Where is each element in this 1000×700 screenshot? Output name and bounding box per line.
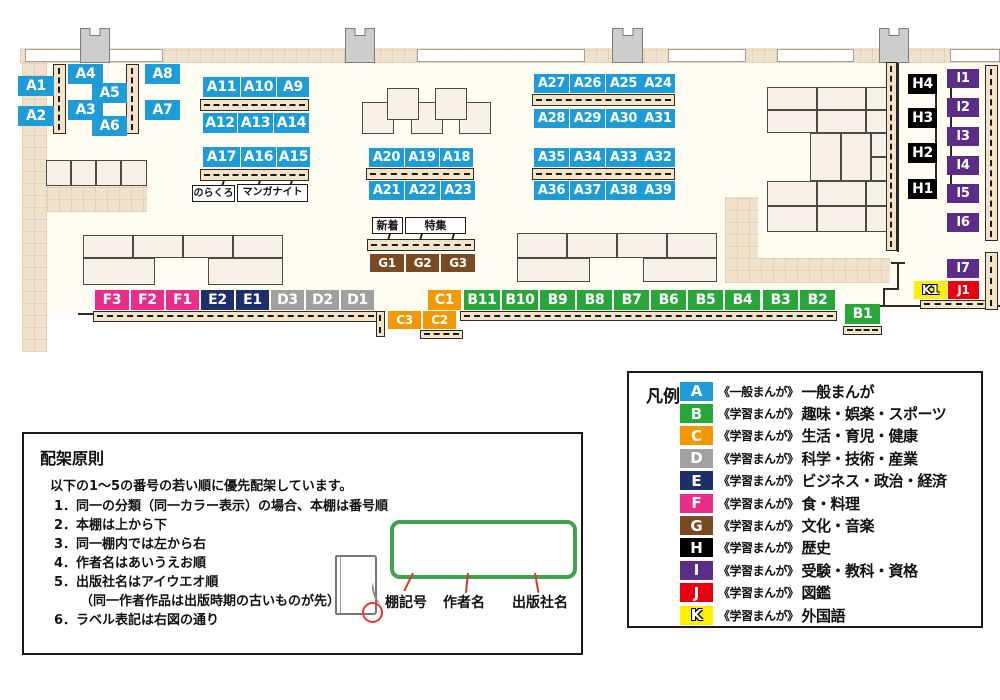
legend-swatch-c: C xyxy=(680,426,713,445)
map-label-b1: B1 xyxy=(845,304,880,324)
map-label-i5: I5 xyxy=(947,184,979,203)
legend-category-label: 受験・教科・資格 xyxy=(802,560,918,581)
reading-table xyxy=(767,181,817,206)
map-label-i3: I3 xyxy=(947,127,979,146)
map-label-h1: H1 xyxy=(908,179,937,199)
reading-table xyxy=(643,258,717,282)
map-label-a28: A28 xyxy=(534,109,569,128)
map-label-a29: A29 xyxy=(570,109,605,128)
map-label-b5: B5 xyxy=(688,290,723,310)
legend-maker-label: 《学習まんが》 xyxy=(718,584,799,601)
legend-swatch-b: B xyxy=(680,404,713,423)
legend-category-label: 文化・音楽 xyxy=(802,515,875,536)
map-label-a30: A30 xyxy=(606,109,641,128)
reading-table xyxy=(767,110,817,133)
map-label-a14: A14 xyxy=(274,113,309,133)
map-label-a32: A32 xyxy=(641,148,675,167)
map-label-b10: B10 xyxy=(502,290,538,310)
map-label-a27: A27 xyxy=(534,74,569,93)
map-label-a36: A36 xyxy=(534,181,569,200)
map-label-f2: F2 xyxy=(131,290,164,310)
legend-title: 凡例 xyxy=(646,382,680,407)
bookshelf xyxy=(420,330,463,339)
map-label-a25: A25 xyxy=(606,74,641,93)
reading-table xyxy=(387,88,419,120)
legend-swatch-k: K xyxy=(680,606,713,625)
legend-category-label: 食・料理 xyxy=(802,493,860,514)
pillar xyxy=(879,28,909,63)
reading-table xyxy=(233,235,283,258)
reading-table xyxy=(817,181,866,206)
map-label-a16: A16 xyxy=(241,147,276,167)
map-label-h2: H2 xyxy=(908,143,937,163)
legend-row-k: K《学習まんが》外国語 xyxy=(680,604,977,626)
legend-maker-label: 《学習まんが》 xyxy=(718,517,799,534)
window xyxy=(668,49,746,62)
wall-line xyxy=(935,84,937,190)
reading-table xyxy=(183,235,233,258)
map-label-g2: G2 xyxy=(406,254,439,272)
map-label-a17: A17 xyxy=(203,147,240,167)
principles-item-0: 1．同一の分類（同一カラー表示）の場合、本棚は番号順 xyxy=(54,497,388,516)
reading-table xyxy=(83,235,133,258)
legend-maker-label: 《学習まんが》 xyxy=(718,427,799,444)
map-label-a7: A7 xyxy=(145,100,180,120)
map-label-c1: C1 xyxy=(428,290,461,310)
map-label-d2: D2 xyxy=(306,290,339,310)
reading-table xyxy=(517,258,590,282)
reading-table xyxy=(46,160,71,186)
legend-category-label: ビジネス・政治・経済 xyxy=(802,470,947,491)
publisher-label: 出版社名 xyxy=(512,592,568,612)
wall-band-left-stub xyxy=(47,186,147,212)
reading-table xyxy=(667,233,717,258)
legend-rows: A《一般まんが》一般まんがB《学習まんが》趣味・娯楽・スポーツC《学習まんが》生… xyxy=(680,380,977,626)
legend-row-b: B《学習まんが》趣味・娯楽・スポーツ xyxy=(680,402,977,424)
map-label-i1: I1 xyxy=(947,69,979,88)
map-label-a39: A39 xyxy=(641,181,675,200)
bookshelf xyxy=(460,311,837,321)
reading-table xyxy=(208,258,283,285)
legend-category-label: 一般まんが xyxy=(802,381,875,402)
reading-table xyxy=(841,133,871,181)
map-label-h3: H3 xyxy=(908,108,937,128)
legend-row-d: D《学習まんが》科学・技術・産業 xyxy=(680,447,977,469)
wall-line xyxy=(897,262,899,288)
map-label-h4: H4 xyxy=(908,74,937,94)
legend-maker-label: 《学習まんが》 xyxy=(718,472,799,489)
map-tag-0: のらくろ xyxy=(192,185,235,202)
legend-swatch-h: H xyxy=(680,538,713,557)
map-label-k1: K1 xyxy=(914,281,947,299)
map-label-a31: A31 xyxy=(641,109,675,128)
manga-corner-floor-map-page: A1A2A4A5A3A6A8A7A11A10A9A12A13A14A17A16A… xyxy=(0,0,1000,700)
principles-title: 配架原則 xyxy=(40,445,104,469)
map-label-a8: A8 xyxy=(145,64,180,84)
legend-category-label: 生活・育児・健康 xyxy=(802,425,918,446)
reading-table xyxy=(96,160,121,186)
reading-table xyxy=(83,258,155,285)
legend-swatch-i: I xyxy=(680,561,713,580)
map-label-a11: A11 xyxy=(203,77,240,97)
map-tag-3: 特集 xyxy=(405,217,466,234)
map-label-f3: F3 xyxy=(95,290,129,310)
map-label-a23: A23 xyxy=(441,181,475,200)
legend-swatch-g: G xyxy=(680,516,713,535)
reading-table xyxy=(617,233,667,258)
map-label-j1: J1 xyxy=(948,281,979,299)
pillar xyxy=(612,28,643,63)
legend-swatch-j: J xyxy=(680,583,713,602)
map-label-i2: I2 xyxy=(947,98,979,117)
legend-row-i: I《学習まんが》受験・教科・資格 xyxy=(680,559,977,581)
legend-maker-label: 《学習まんが》 xyxy=(718,405,799,422)
window xyxy=(417,49,585,62)
bookshelf xyxy=(367,239,475,251)
map-label-f1: F1 xyxy=(166,290,199,310)
legend-row-g: G《学習まんが》文化・音楽 xyxy=(680,514,977,536)
label-position-circle-icon xyxy=(362,602,383,623)
reading-table xyxy=(817,110,866,133)
map-label-c2: C2 xyxy=(423,311,456,329)
map-label-a6: A6 xyxy=(92,116,127,136)
map-label-a12: A12 xyxy=(203,113,237,133)
reading-table xyxy=(767,206,817,232)
legend-swatch-a: A xyxy=(680,382,713,401)
spine-label-diagram xyxy=(390,520,577,579)
legend-swatch-e: E xyxy=(680,471,713,490)
legend-row-h: H《学習まんが》歴史 xyxy=(680,537,977,559)
principles-item-2: 3．同一棚内では左から右 xyxy=(54,535,388,554)
reading-table xyxy=(767,87,817,110)
legend-category-label: 科学・技術・産業 xyxy=(802,448,918,469)
map-label-a33: A33 xyxy=(606,148,641,167)
principles-box: 配架原則 以下の1～5の番号の若い順に優先配架しています。 1．同一の分類（同一… xyxy=(22,432,583,655)
legend-category-label: 歴史 xyxy=(802,537,831,558)
window xyxy=(777,49,854,62)
map-label-e2: E2 xyxy=(201,290,234,310)
map-label-b7: B7 xyxy=(614,290,649,310)
bookshelf xyxy=(843,326,882,335)
reading-table xyxy=(567,233,617,258)
bookshelf xyxy=(366,168,474,180)
reading-table xyxy=(71,160,96,186)
shelf-code-label: 棚記号 xyxy=(385,592,427,612)
legend-row-a: A《一般まんが》一般まんが xyxy=(680,380,977,402)
map-label-a19: A19 xyxy=(405,148,439,167)
map-label-i4: I4 xyxy=(947,156,979,175)
bookshelf xyxy=(532,94,675,106)
map-label-a34: A34 xyxy=(570,148,605,167)
reading-table xyxy=(435,88,467,120)
map-label-a38: A38 xyxy=(606,181,641,200)
map-label-b6: B6 xyxy=(651,290,686,310)
map-label-a18: A18 xyxy=(440,148,473,167)
map-label-a15: A15 xyxy=(277,147,310,167)
map-label-a4: A4 xyxy=(68,64,103,84)
legend-maker-label: 《一般まんが》 xyxy=(718,383,799,400)
bookshelf xyxy=(376,311,385,337)
reading-table xyxy=(121,160,147,186)
legend-category-label: 趣味・娯楽・スポーツ xyxy=(802,403,947,424)
legend-swatch-d: D xyxy=(680,449,713,468)
map-label-b9: B9 xyxy=(540,290,575,310)
bookshelf xyxy=(93,311,378,322)
map-label-a2: A2 xyxy=(18,106,54,126)
map-label-i7: I7 xyxy=(947,259,979,278)
legend-box: 凡例 A《一般まんが》一般まんがB《学習まんが》趣味・娯楽・スポーツC《学習まん… xyxy=(627,371,983,628)
map-label-a26: A26 xyxy=(570,74,605,93)
bookshelf xyxy=(126,64,139,134)
map-label-d1: D1 xyxy=(341,290,374,310)
bookshelf xyxy=(532,168,675,180)
floor-map: A1A2A4A5A3A6A8A7A11A10A9A12A13A14A17A16A… xyxy=(0,0,1000,360)
principles-intro: 以下の1～5の番号の若い順に優先配架しています。 xyxy=(50,475,352,494)
reading-table xyxy=(810,133,841,181)
map-tag-2: 新着 xyxy=(372,217,403,234)
map-label-a22: A22 xyxy=(405,181,440,200)
map-label-a37: A37 xyxy=(570,181,605,200)
reading-table xyxy=(817,87,866,110)
legend-swatch-f: F xyxy=(680,494,713,513)
principles-item-1: 2．本棚は上から下 xyxy=(54,516,388,535)
map-label-b8: B8 xyxy=(577,290,612,310)
reading-table xyxy=(817,206,866,232)
map-label-b2: B2 xyxy=(800,290,835,310)
pillar xyxy=(345,28,375,63)
map-label-a20: A20 xyxy=(369,148,404,167)
map-label-g3: G3 xyxy=(441,254,475,272)
wall-line xyxy=(883,288,885,306)
legend-row-e: E《学習まんが》ビジネス・政治・経済 xyxy=(680,470,977,492)
map-label-b11: B11 xyxy=(464,290,500,310)
map-label-d3: D3 xyxy=(271,290,304,310)
map-label-b4: B4 xyxy=(725,290,760,310)
legend-category-label: 図鑑 xyxy=(802,582,831,603)
bookshelf xyxy=(985,65,998,241)
bookshelf xyxy=(985,252,998,310)
map-tag-1: マンガナイト xyxy=(237,184,308,202)
legend-row-c: C《学習まんが》生活・育児・健康 xyxy=(680,425,977,447)
legend-maker-label: 《学習まんが》 xyxy=(718,495,799,512)
map-label-g1: G1 xyxy=(370,254,404,272)
wall-line xyxy=(891,262,905,264)
reading-table xyxy=(133,235,183,258)
map-label-a9: A9 xyxy=(277,77,309,97)
wall-band-corridor-h xyxy=(725,258,890,283)
bookshelf xyxy=(200,99,309,111)
map-label-b3: B3 xyxy=(763,290,798,310)
legend-row-f: F《学習まんが》食・料理 xyxy=(680,492,977,514)
map-label-a21: A21 xyxy=(369,181,404,200)
map-label-i6: I6 xyxy=(947,213,979,232)
window xyxy=(950,49,1000,62)
wall-line xyxy=(883,288,899,290)
map-label-c3: C3 xyxy=(388,311,421,329)
author-label: 作者名 xyxy=(443,592,485,612)
legend-maker-label: 《学習まんが》 xyxy=(718,562,799,579)
map-label-a1: A1 xyxy=(18,76,54,96)
map-label-a10: A10 xyxy=(241,77,276,97)
map-label-a13: A13 xyxy=(238,113,273,133)
map-label-a24: A24 xyxy=(641,74,675,93)
wall-line xyxy=(897,62,899,252)
map-label-a35: A35 xyxy=(534,148,569,167)
legend-maker-label: 《学習まんが》 xyxy=(718,607,799,624)
legend-maker-label: 《学習まんが》 xyxy=(718,539,799,556)
bookshelf xyxy=(200,169,309,181)
pillar xyxy=(80,28,110,63)
bookshelf xyxy=(53,64,66,134)
legend-category-label: 外国語 xyxy=(802,605,846,626)
reading-table xyxy=(517,233,567,258)
bookshelf xyxy=(886,62,897,251)
legend-maker-label: 《学習まんが》 xyxy=(718,450,799,467)
legend-row-j: J《学習まんが》図鑑 xyxy=(680,582,977,604)
map-label-e1: E1 xyxy=(236,290,269,310)
